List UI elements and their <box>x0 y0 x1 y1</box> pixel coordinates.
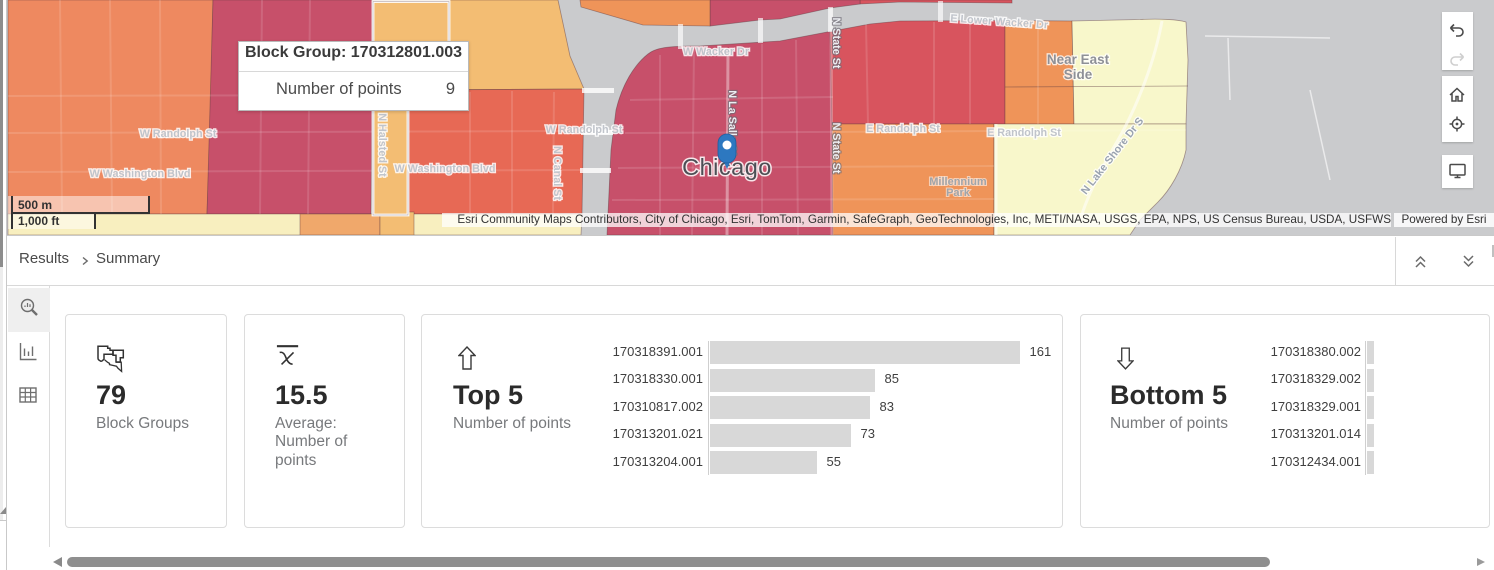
svg-text:N Canal St: N Canal St <box>551 146 563 200</box>
svg-text:Near East: Near East <box>1047 52 1110 67</box>
svg-text:W Randolph St: W Randolph St <box>140 128 217 140</box>
svg-text:W Washington Blvd: W Washington Blvd <box>395 163 496 175</box>
svg-text:Park: Park <box>946 187 971 199</box>
svg-text:W Randolph St: W Randolph St <box>546 124 623 136</box>
svg-text:Side: Side <box>1064 67 1093 82</box>
svg-text:N Halsted St: N Halsted St <box>376 113 388 177</box>
svg-text:N State St: N State St <box>830 18 842 69</box>
svg-text:E Randolph St: E Randolph St <box>987 127 1061 139</box>
svg-text:W Wacker Dr: W Wacker Dr <box>683 46 750 58</box>
svg-text:N State St: N State St <box>830 123 842 174</box>
svg-text:E Randolph St: E Randolph St <box>866 123 940 135</box>
svg-text:W Washington Blvd: W Washington Blvd <box>90 168 191 180</box>
